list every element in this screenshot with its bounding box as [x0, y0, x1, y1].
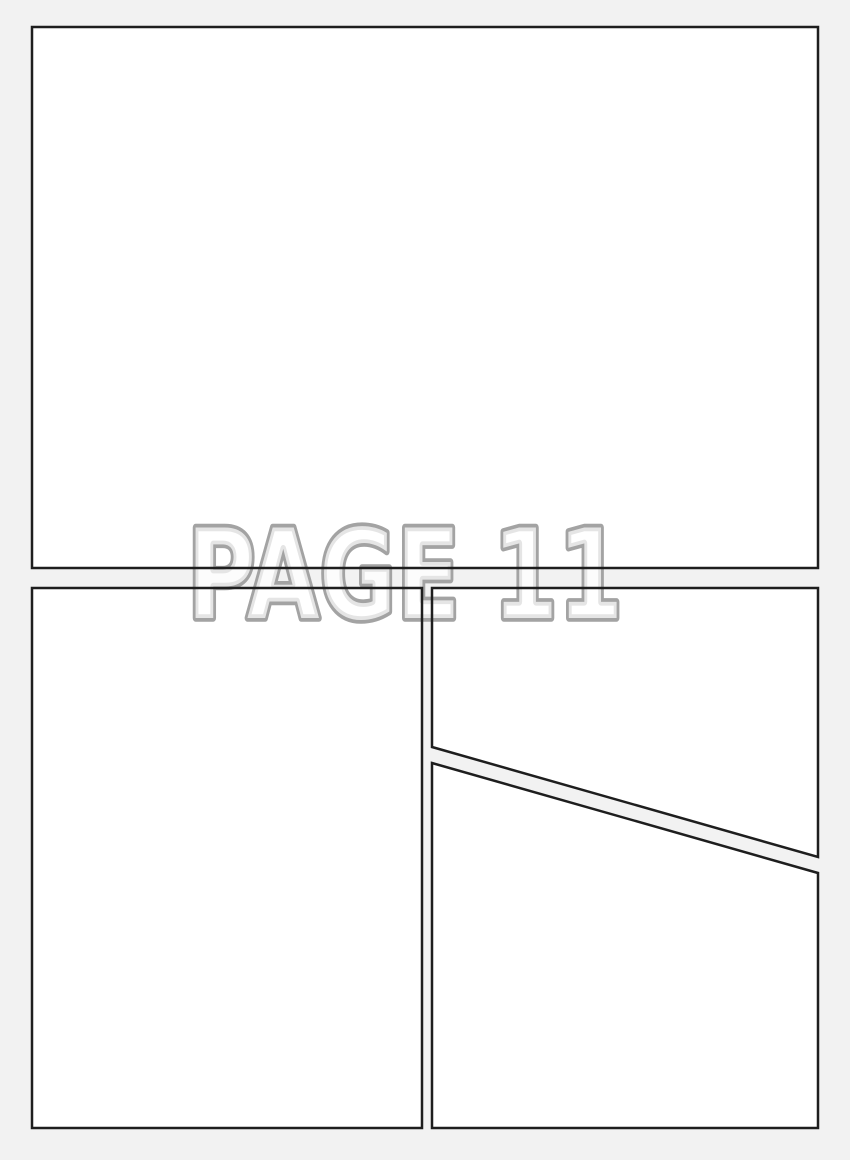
comic-page-canvas: PAGE 11	[0, 0, 850, 1160]
comic-page-template: PAGE 11	[0, 0, 850, 1160]
panel-bottom-left	[32, 588, 422, 1128]
page-number-watermark: PAGE 11	[187, 504, 623, 648]
panel-top	[32, 27, 818, 568]
